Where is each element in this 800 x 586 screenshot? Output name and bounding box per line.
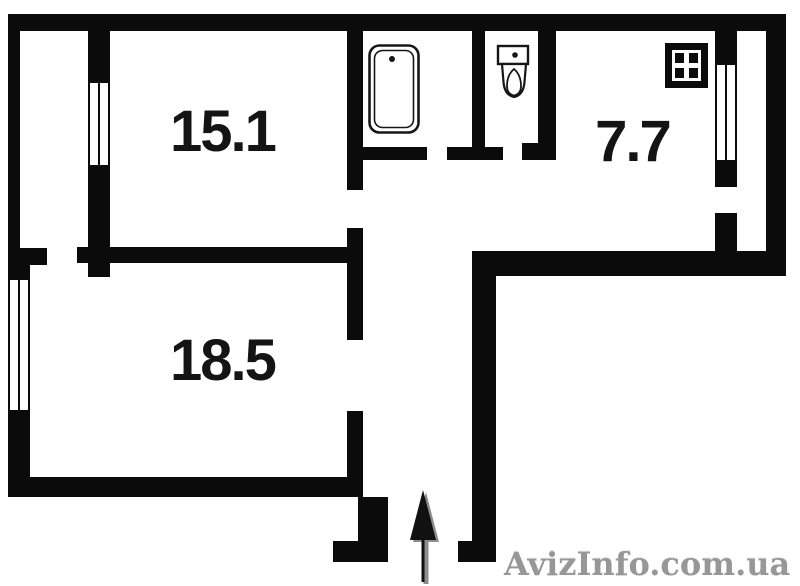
toilet-icon	[495, 44, 533, 110]
stove-icon	[665, 43, 708, 88]
kitchen-window	[715, 65, 737, 160]
floor-plan: 15.1 18.5 7.7 AvizInfo.com.ua	[0, 0, 800, 586]
wall-vestibule-left-foot	[333, 541, 388, 562]
wall-left-outer-mid	[8, 265, 30, 280]
wall-hallway-lower	[347, 411, 363, 497]
watermark-text: AvizInfo.com.ua	[504, 548, 790, 580]
wall-room-divider	[77, 247, 363, 263]
left-wall-window	[8, 280, 30, 410]
room-label-kitchen: 7.7	[570, 113, 695, 171]
wall-bath-wc-divider	[472, 31, 485, 160]
wall-bottom-living-room	[8, 477, 358, 497]
bathtub-icon	[368, 44, 420, 134]
wall-top-outer	[8, 14, 786, 31]
entrance-arrow-icon	[405, 485, 447, 586]
wall-room-divider-jamb	[88, 263, 110, 277]
wall-hallway-upper	[347, 31, 363, 190]
wall-right-outer	[766, 31, 786, 253]
wall-kitchen-window-mid	[715, 160, 737, 187]
room-label-bedroom: 15.1	[150, 103, 295, 161]
wall-bath-south-left	[363, 147, 427, 160]
wall-vestibule-right-foot	[458, 541, 496, 562]
wall-left-outer-upper	[8, 31, 20, 265]
wall-vestibule-right	[472, 276, 496, 542]
wall-kitchen-window-top	[715, 31, 737, 65]
wall-kitchen-south	[472, 251, 786, 276]
wall-loggia-divider-lower	[88, 165, 110, 247]
wall-wc-right	[538, 31, 556, 160]
wall-kitchen-window-bottom	[715, 213, 737, 251]
wall-hallway-middle	[347, 228, 363, 340]
left-loggia-window	[88, 83, 110, 165]
wall-loggia-divider-upper	[88, 31, 110, 83]
room-label-living-room: 18.5	[150, 332, 295, 390]
wall-left-pier	[20, 248, 47, 265]
